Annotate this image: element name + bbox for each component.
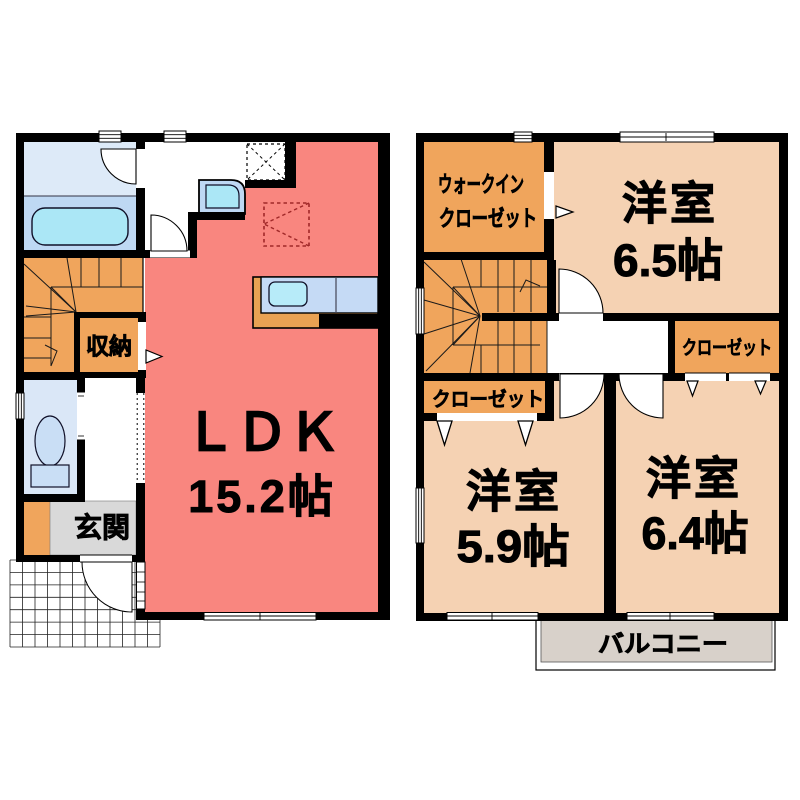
svg-text:洋室: 洋室 [622, 178, 718, 229]
svg-text:6.4帖: 6.4帖 [642, 508, 749, 559]
svg-text:ＬＤＫ: ＬＤＫ [184, 404, 340, 462]
svg-text:洋室: 洋室 [466, 466, 562, 517]
svg-text:クローゼット: クローゼット [682, 336, 772, 359]
svg-text:洋室: 洋室 [646, 453, 742, 504]
svg-text:ウォークイン: ウォークイン [438, 172, 524, 197]
svg-text:玄関: 玄関 [74, 511, 130, 543]
svg-text:6.5帖: 6.5帖 [613, 235, 723, 286]
svg-text:5.9帖: 5.9帖 [457, 521, 570, 572]
svg-text:収納: 収納 [86, 333, 132, 359]
svg-text:15.2帖: 15.2帖 [188, 471, 336, 522]
svg-text:バルコニー: バルコニー [598, 631, 728, 658]
svg-text:クローゼット: クローゼット [439, 206, 537, 231]
svg-text:クローゼット: クローゼット [432, 387, 544, 411]
